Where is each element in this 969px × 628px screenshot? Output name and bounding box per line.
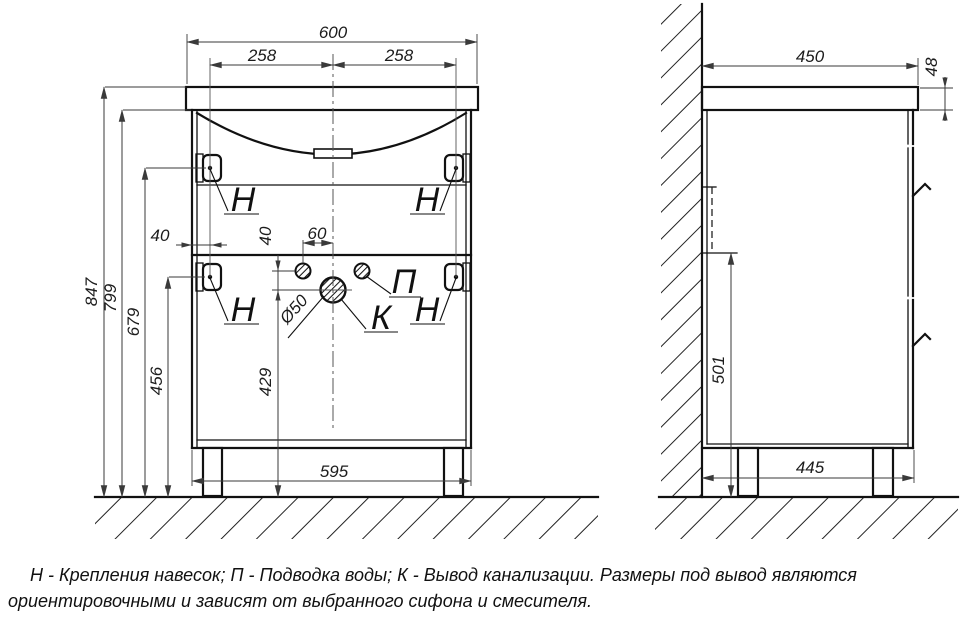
note-line-1: Н - Крепления навесок; П - Подводка воды…	[30, 565, 857, 585]
dim-water-to-center: 60	[308, 224, 327, 243]
water-supply-hole-left	[296, 264, 311, 279]
label-water-supply: П	[392, 263, 417, 301]
dim-body-height: 799	[101, 283, 120, 312]
dim-upper-bracket-height: 679	[124, 307, 143, 336]
floor-hatch-side	[655, 498, 958, 539]
vanity-installation-drawing: 600 258 258 847 799 679 456 429 40 40 60…	[0, 0, 969, 628]
dim-bottom-width: 595	[320, 462, 349, 481]
dim-bottom-depth: 445	[796, 458, 825, 477]
dim-top-width: 600	[319, 23, 348, 42]
wall-section	[661, 4, 702, 497]
dim-lower-bracket-height: 456	[147, 366, 166, 395]
leg-front-left	[203, 448, 222, 496]
technical-drawing-page: 600 258 258 847 799 679 456 429 40 40 60…	[0, 0, 969, 628]
leg-side-back	[738, 448, 758, 496]
note-line-2: ориентировочными и зависят от выбранного…	[8, 591, 592, 611]
label-sewage-outlet: К	[371, 299, 393, 337]
dim-top-thickness: 48	[922, 57, 941, 76]
dim-water-to-outlet: 40	[256, 226, 275, 245]
dim-top-depth: 450	[796, 47, 825, 66]
floor-front	[95, 497, 598, 539]
dim-outlet-height: 429	[256, 367, 275, 396]
dim-back-cutout-height: 501	[709, 356, 728, 384]
leg-front-right	[444, 448, 463, 496]
floor-side	[655, 497, 958, 539]
dim-bracket-side-offset: 40	[151, 226, 170, 245]
label-bracket-upper-right: Н	[415, 181, 440, 219]
dim-bracket-left-offset: 258	[247, 46, 277, 65]
label-bracket-upper-left: Н	[231, 181, 256, 219]
label-bracket-lower-right: Н	[415, 291, 440, 329]
dim-total-height: 847	[82, 277, 101, 306]
floor-hatch-front	[95, 498, 598, 539]
label-bracket-lower-left: Н	[231, 291, 256, 329]
leg-side-front	[873, 448, 893, 496]
wall-hatch	[661, 4, 702, 497]
dim-bracket-right-offset: 258	[384, 46, 414, 65]
